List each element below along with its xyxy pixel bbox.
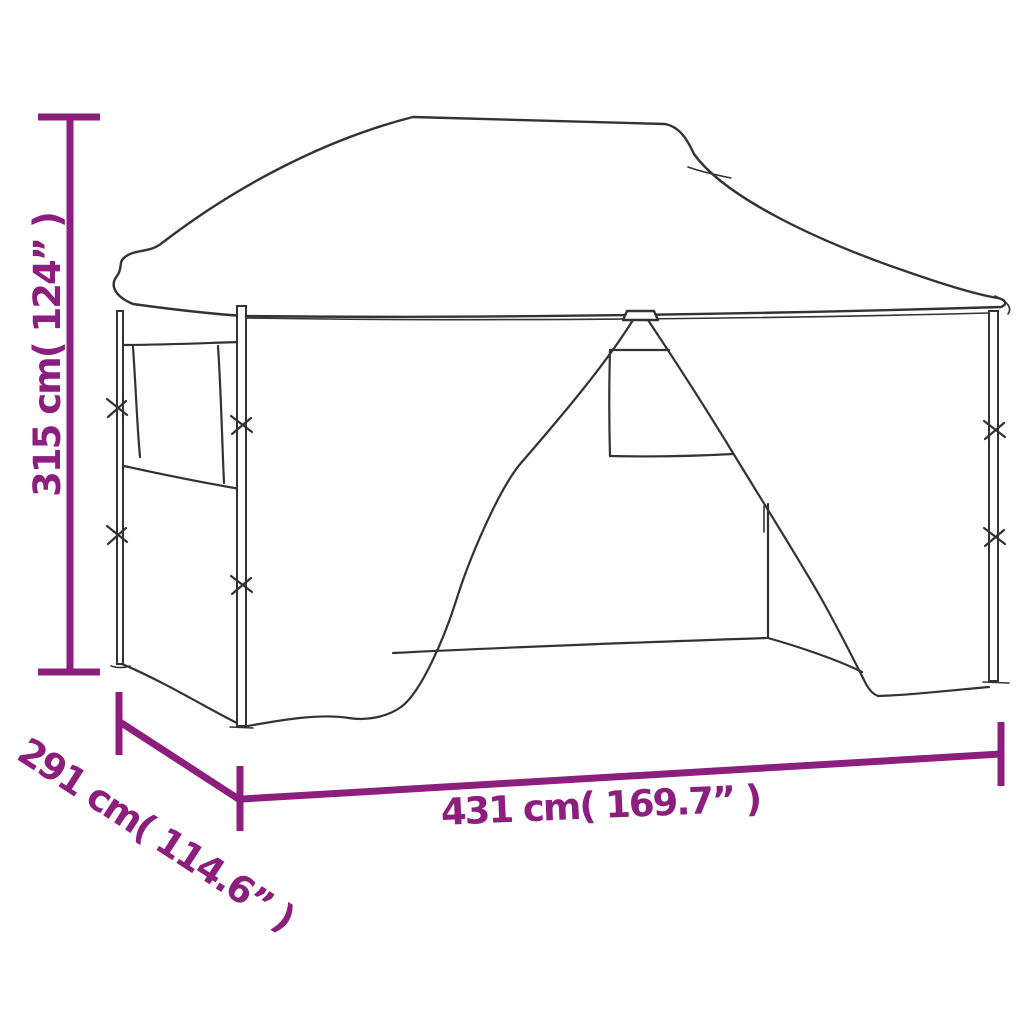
- door-apex-tab: [623, 311, 658, 320]
- rear-left-pole-foot: [111, 666, 130, 668]
- left-valance-seam: [121, 342, 239, 345]
- front-wall-bottom-left: [248, 716, 349, 726]
- height-dimension-label: 315 cm( 124” ): [26, 213, 69, 497]
- interior-back-wall: [393, 350, 766, 653]
- door-right-flap-edge: [648, 320, 878, 696]
- front-wall-bottom-right: [878, 687, 989, 696]
- tent-canopy: [114, 117, 1006, 317]
- front-left-pole-foot: [230, 727, 253, 728]
- depth-dimension: 291 cm( 114.6” ): [10, 692, 301, 940]
- width-dimension: 431 cm( 169.7” ): [240, 722, 1001, 834]
- front-left-pole: [237, 306, 246, 726]
- diagram-canvas: 315 cm( 124” ) 431 cm( 169.7” ) 291 cm( …: [0, 0, 1024, 1024]
- depth-dimension-label: 291 cm( 114.6” ): [10, 729, 301, 939]
- right-pole: [989, 311, 998, 681]
- tent-illustration: [107, 117, 1010, 728]
- interior-floor-line: [393, 638, 766, 653]
- left-window-right-edge: [218, 346, 224, 483]
- left-wall-bottom-edge: [122, 664, 237, 723]
- depth-dimension-line: [120, 722, 240, 800]
- door-left-flap-edge: [349, 320, 633, 719]
- right-pole-foot: [983, 682, 1009, 683]
- rear-left-pole: [117, 311, 123, 664]
- height-dimension: 315 cm( 124” ): [26, 117, 100, 672]
- dimension-diagram: 315 cm( 124” ) 431 cm( 169.7” ) 291 cm( …: [0, 0, 1024, 1024]
- left-window-left-edge: [133, 347, 140, 457]
